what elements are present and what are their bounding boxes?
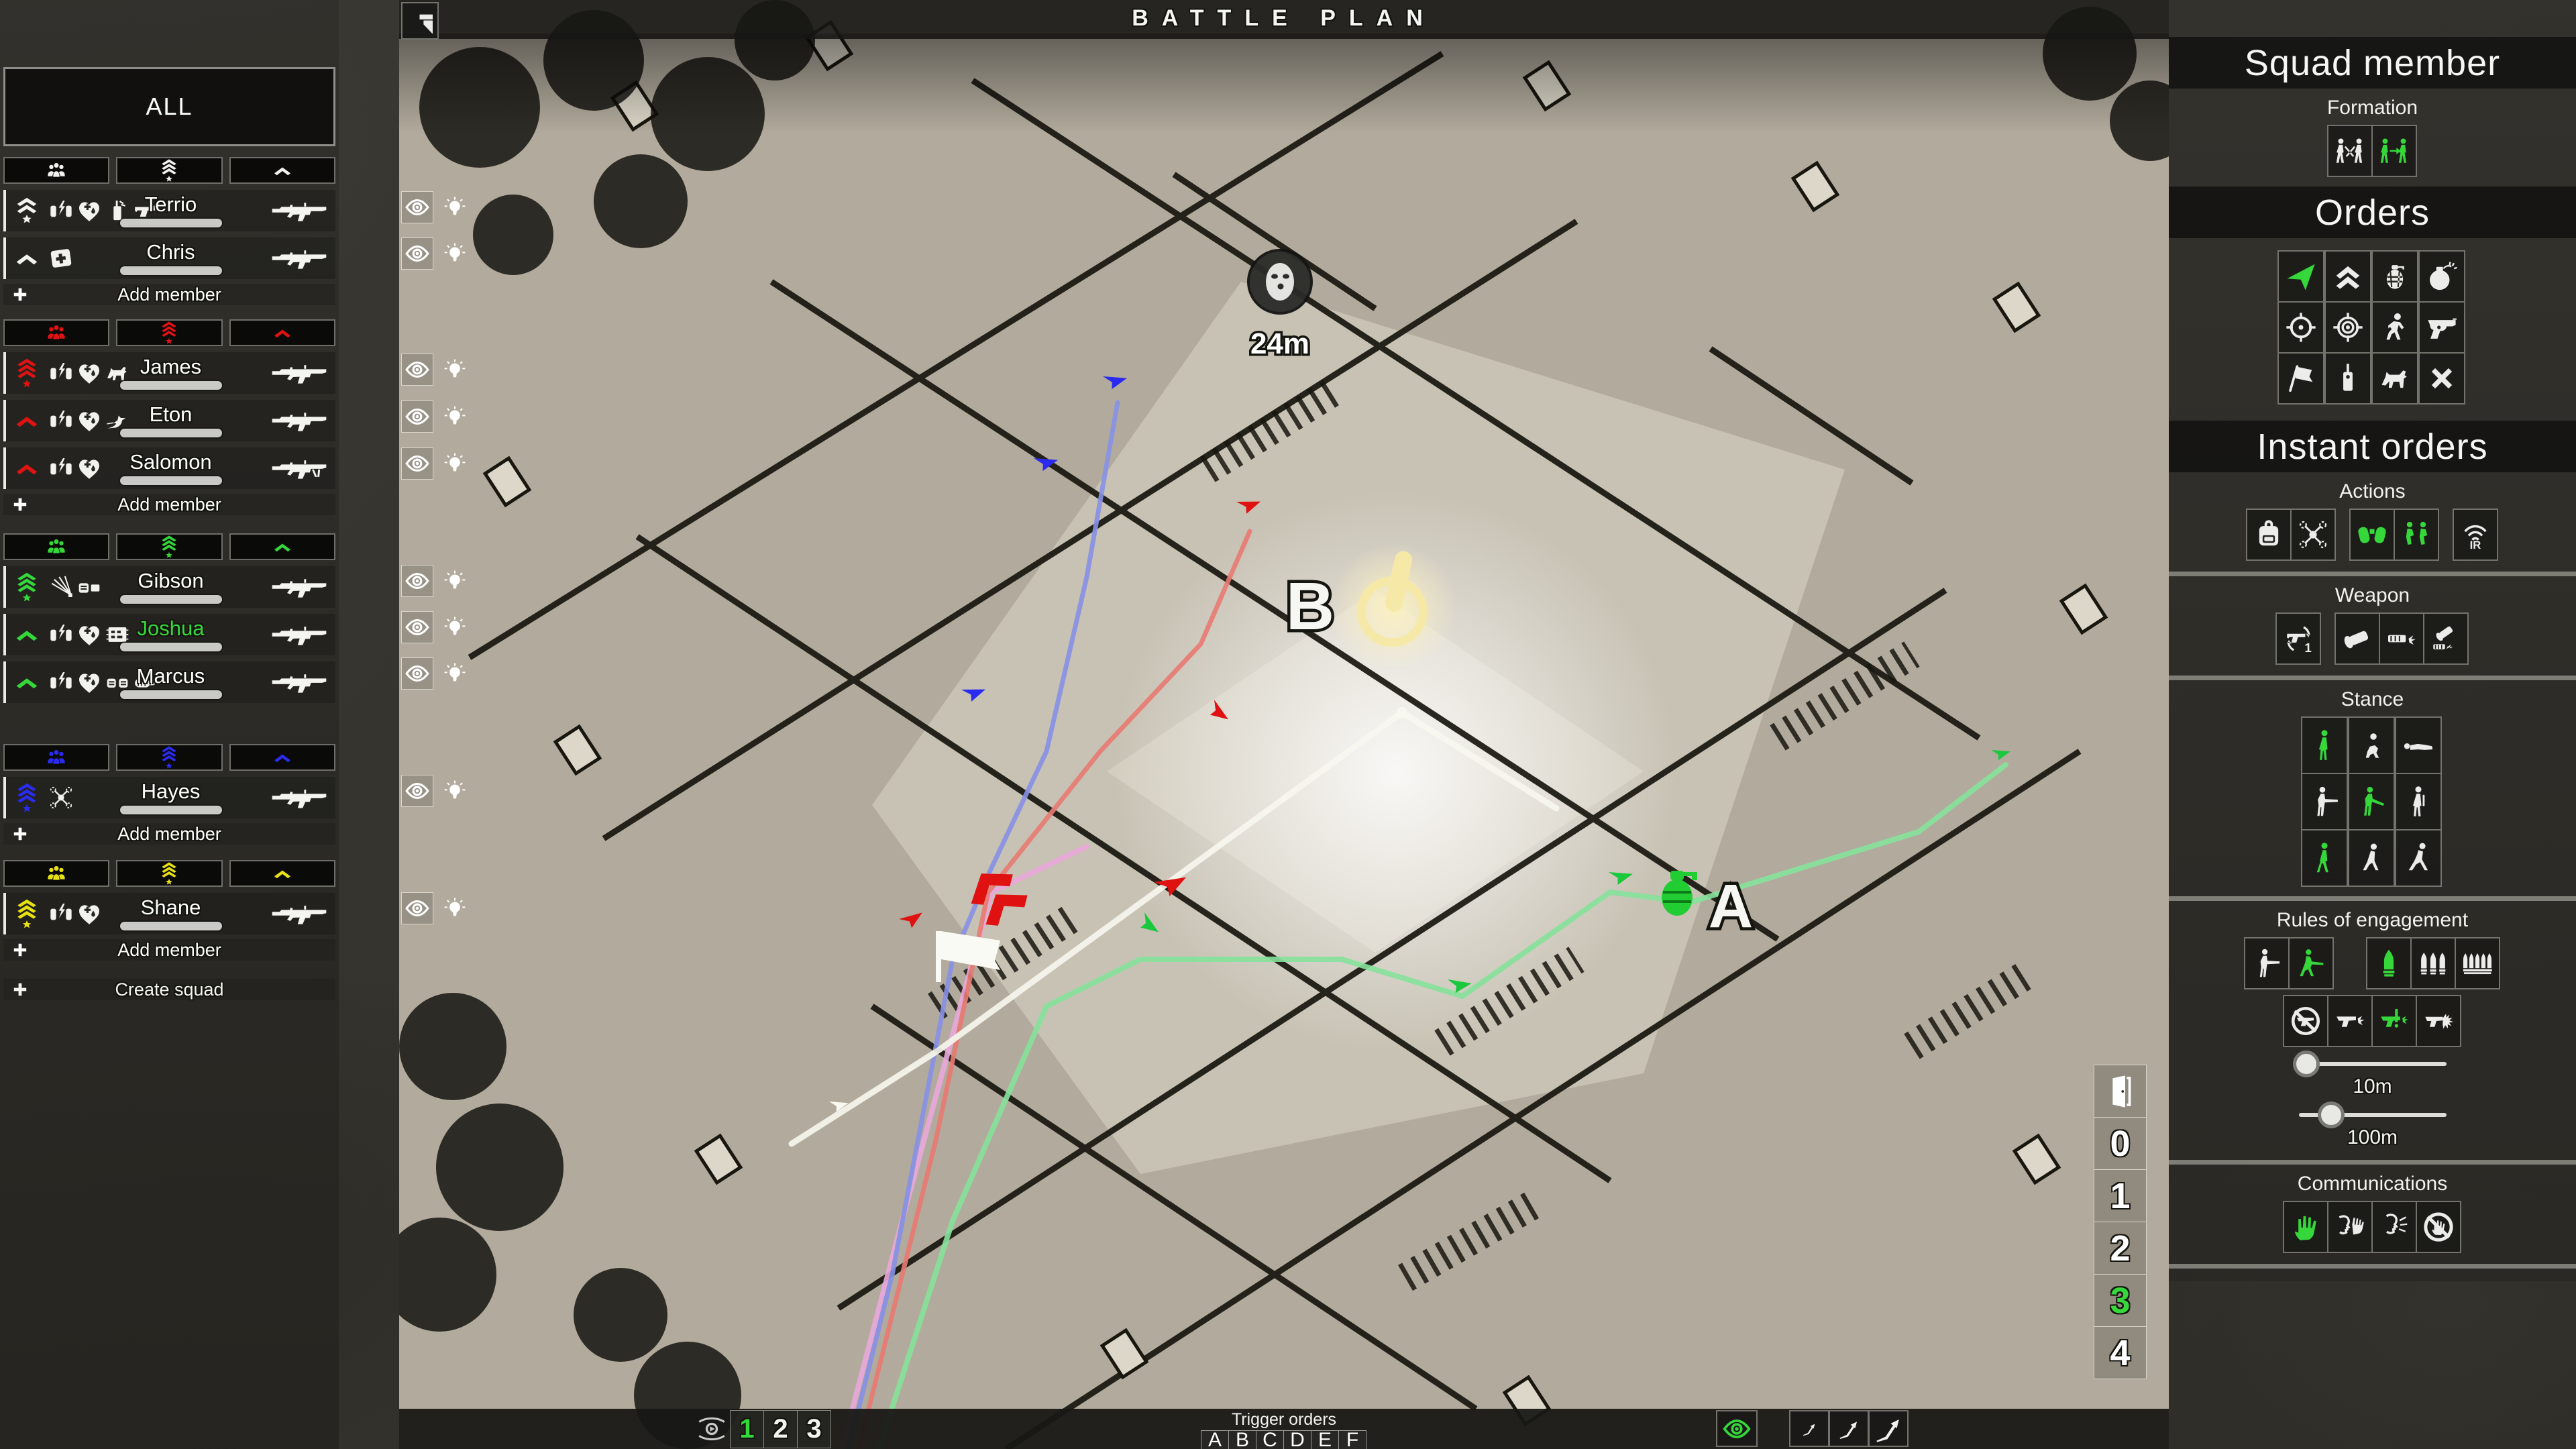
bomb-icon (2424, 258, 2459, 295)
squad-filter-button[interactable] (229, 157, 335, 184)
squad-filter-button[interactable] (3, 157, 109, 184)
plan-tab[interactable]: 1 (730, 1410, 764, 1448)
comms-button[interactable] (2371, 1201, 2417, 1253)
bulb-icon (441, 450, 468, 477)
men-arrow-icon (2377, 131, 2411, 170)
member-visibility-row (401, 192, 482, 223)
stance-button[interactable] (2395, 829, 2442, 887)
chevron-icon (270, 861, 294, 885)
formation-label: Formation (2169, 97, 2576, 119)
weapon-row (2169, 612, 2576, 665)
rifle-icon (268, 783, 330, 812)
stance-button[interactable] (2301, 716, 2348, 774)
medkit-icon (48, 245, 74, 272)
member-view-button[interactable] (401, 611, 433, 643)
order-button[interactable] (2418, 352, 2465, 405)
heart-medic-icon (76, 621, 103, 648)
stance-aim-icon (2307, 780, 2342, 824)
squad-5: Shane Add member (3, 860, 335, 961)
squad-2: James Eton Salomon (3, 319, 335, 515)
replay-360-icon (694, 1412, 729, 1446)
no-comms-icon (2422, 1207, 2455, 1246)
squad-filter-button[interactable] (229, 860, 335, 887)
floor-door-button[interactable] (2094, 1065, 2147, 1118)
bulb-icon (441, 568, 468, 594)
heart-medic-icon (76, 360, 103, 386)
focus-target-icon (2330, 309, 2365, 346)
chevron-icon (11, 619, 42, 650)
member-name: Chris (146, 240, 195, 264)
action-button[interactable] (2453, 508, 2498, 561)
member-health-bar (120, 922, 222, 930)
cancel-x-icon (2424, 360, 2459, 397)
member-name: Marcus (137, 664, 205, 688)
actions-row (2169, 508, 2576, 561)
crosshair-icon (2284, 309, 2318, 346)
roe-fire-button[interactable] (2327, 995, 2373, 1047)
group-icon (44, 535, 68, 559)
member-view-button[interactable] (401, 400, 433, 433)
member-health-bar (120, 381, 222, 390)
range-slider: 100m (2299, 1113, 2447, 1149)
member-row[interactable]: Marcus (3, 661, 335, 703)
member-name: Salomon (129, 450, 211, 474)
bulb-icon (441, 777, 468, 804)
chevron-icon (11, 243, 42, 274)
fire-burst-icon (2422, 1002, 2455, 1040)
member-health-bar (120, 595, 222, 604)
fist-wall-icon (76, 574, 103, 600)
tactical-map[interactable]: 24m B A (399, 0, 2169, 1449)
hands-lightning-icon (48, 669, 74, 696)
hands-lightning-icon (48, 455, 74, 482)
hands-lightning-icon (48, 197, 74, 224)
squad-filter-button[interactable] (116, 744, 222, 771)
rifle-icon (268, 358, 330, 388)
order-button[interactable] (2371, 250, 2418, 303)
weapon-button[interactable] (2379, 612, 2424, 665)
squad-filter-button[interactable] (229, 533, 335, 560)
member-name: Gibson (138, 569, 203, 593)
squad-filter-button[interactable] (3, 744, 109, 771)
roe-fire-button[interactable] (2416, 995, 2461, 1047)
comms-button[interactable] (2416, 1201, 2461, 1253)
roe-button[interactable] (2288, 937, 2334, 989)
bullet-5-icon (2461, 944, 2494, 983)
squad-4-header (3, 744, 335, 771)
squad-list-panel: ALL Terrio Chris (0, 0, 339, 1449)
roe-hold-icon (2250, 944, 2284, 983)
rank-3-star-icon (11, 782, 42, 813)
member-row[interactable]: Salomon (3, 447, 335, 489)
plan-tab[interactable]: 3 (797, 1410, 831, 1448)
squad-3-header (3, 533, 335, 560)
whisper-icon (2333, 1207, 2367, 1246)
member-light-button[interactable] (441, 403, 468, 430)
trigger-button[interactable]: A (1201, 1430, 1229, 1449)
member-view-button[interactable] (401, 191, 433, 223)
weapon-button[interactable] (2275, 612, 2321, 665)
trigger-button[interactable]: E (1311, 1430, 1339, 1449)
crouch-run-icon (2377, 309, 2412, 346)
order-button[interactable] (2324, 301, 2371, 354)
trigger-button[interactable]: D (1283, 1430, 1311, 1449)
member-visibility-row (401, 238, 482, 269)
group-icon (44, 861, 68, 885)
member-visibility-row (401, 354, 482, 385)
roe-fire-button[interactable] (2371, 995, 2417, 1047)
drone-icon (48, 784, 74, 811)
member-view-button[interactable] (401, 447, 433, 480)
member-view-button[interactable] (401, 565, 433, 597)
member-row[interactable]: Joshua (3, 614, 335, 655)
shout-icon (2377, 1207, 2411, 1246)
trigger-button[interactable]: B (1228, 1430, 1256, 1449)
member-name: James (140, 355, 201, 379)
squad-2-header (3, 319, 335, 346)
order-button[interactable] (2371, 301, 2418, 354)
floor-level-button[interactable]: 2 (2094, 1222, 2147, 1275)
roe-label: Rules of engagement (2169, 909, 2576, 932)
stance-button[interactable] (2395, 716, 2442, 774)
floor-selector: 0 1 2 3 4 (2094, 1065, 2147, 1379)
path-scale-button[interactable] (1789, 1410, 1829, 1447)
slider-knob[interactable] (2293, 1051, 2320, 1077)
ir-light-icon (2459, 515, 2492, 554)
comms-button[interactable] (2283, 1201, 2328, 1253)
bulb-icon (441, 403, 468, 430)
stance-prone-icon (2401, 723, 2436, 767)
squad-1: Terrio Chris Add member (3, 157, 335, 305)
member-row[interactable]: Gibson (3, 566, 335, 608)
rank-3-star-icon (11, 358, 42, 388)
order-button[interactable] (2324, 352, 2371, 405)
grenade-icon (2377, 258, 2412, 295)
roe-ammo-button[interactable] (2455, 937, 2500, 989)
action-button[interactable] (2349, 508, 2395, 561)
stance-button[interactable] (2301, 773, 2348, 830)
bullet-1-icon (2372, 944, 2406, 983)
trigger-orders: Trigger orders A B C D E F (1201, 1409, 1366, 1449)
enemy-marker (1248, 250, 1311, 313)
add-member-button[interactable]: Add member (3, 823, 335, 845)
member-health-bar (120, 476, 222, 485)
chevron-icon (270, 535, 294, 559)
eye-icon (405, 661, 430, 686)
add-member-button[interactable]: Add member (3, 284, 335, 305)
order-button[interactable] (2277, 301, 2324, 354)
member-row[interactable]: Terrio (3, 190, 335, 231)
eye-icon (405, 451, 430, 476)
battle-plan-screen: 24m B A BATTLE PLAN ALL (0, 0, 2576, 1449)
member-light-button[interactable] (441, 777, 468, 804)
stance-button[interactable] (2301, 829, 2348, 887)
rifle-icon (268, 406, 330, 435)
bullet-3-icon (2416, 944, 2450, 983)
member-health-bar (120, 429, 222, 437)
rank-3-star-icon (11, 898, 42, 929)
path-scale-button[interactable] (1868, 1410, 1909, 1447)
eye-icon (405, 614, 430, 640)
stance-label: Stance (2169, 688, 2576, 711)
chevron-icon (11, 667, 42, 698)
pistol-swap-icon (2282, 619, 2315, 658)
path-arrow-icon (1801, 1420, 1818, 1438)
member-light-button[interactable] (441, 356, 468, 383)
member-visibility-row (401, 612, 482, 643)
member-light-button[interactable] (441, 240, 468, 267)
chevron-icon (11, 453, 42, 484)
objective-a-label: A (1709, 872, 1753, 941)
rush-chevrons-icon (2330, 258, 2365, 295)
eye-icon (405, 241, 430, 266)
member-name: Shane (141, 896, 201, 920)
roe-ammo-button[interactable] (2366, 937, 2412, 989)
orders-grid (2169, 250, 2576, 403)
floor-level-button[interactable]: 0 (2094, 1117, 2147, 1170)
action-button[interactable] (2246, 508, 2292, 561)
men-cross-icon (2333, 131, 2367, 170)
rank-3-star-icon (157, 158, 181, 182)
stance-run-icon (2401, 836, 2436, 880)
heart-medic-icon (76, 900, 103, 927)
rifle-icon (268, 667, 330, 697)
stance-stand-icon (2307, 723, 2342, 767)
member-name: Joshua (138, 616, 205, 641)
rifle-icon (268, 196, 330, 225)
action-button[interactable] (2290, 508, 2336, 561)
floor-level-button[interactable]: 3 (2094, 1274, 2147, 1327)
plan-tab[interactable]: 2 (763, 1410, 798, 1448)
member-health-bar (120, 690, 222, 699)
floor-level-button[interactable]: 4 (2094, 1326, 2147, 1379)
order-button[interactable] (2371, 352, 2418, 405)
member-light-button[interactable] (441, 660, 468, 687)
squad-5-header (3, 860, 335, 887)
member-visibility-row (401, 566, 482, 596)
rank-3-star-icon (157, 745, 181, 769)
stance-grid (2169, 716, 2576, 885)
bulb-icon (441, 356, 468, 383)
detonator-icon (2330, 360, 2365, 397)
stance-walk-icon (2307, 836, 2342, 880)
path-scale-button[interactable] (1829, 1410, 1869, 1447)
breach-spray-icon (48, 574, 74, 600)
member-visibility-row (401, 448, 482, 479)
hands-lightning-icon (48, 407, 74, 434)
orders-title: Orders (2169, 186, 2576, 238)
rank-3-star-icon (157, 321, 181, 345)
stance-low-icon (2354, 780, 2389, 824)
squad-3: Gibson Joshua Marcus (3, 533, 335, 703)
squad-filter-button[interactable] (3, 860, 109, 887)
squad-member-title: Squad member (2169, 37, 2576, 89)
suppressor-icon (2385, 619, 2418, 658)
bottom-bar: 1 2 3 Trigger orders A B C D E (399, 1409, 2169, 1449)
squad-4: Hayes Add member (3, 744, 335, 845)
squad-filter-button[interactable] (116, 533, 222, 560)
chevron-icon (270, 158, 294, 182)
add-member-button[interactable]: Add member (3, 494, 335, 515)
group-icon (44, 745, 68, 769)
roe-posture-row (2169, 937, 2576, 989)
stance-jog-icon (2354, 836, 2389, 880)
member-health-bar (120, 806, 222, 814)
roe-ammo-button[interactable] (2410, 937, 2456, 989)
bulb-icon (441, 240, 468, 267)
show-paths-button[interactable] (1716, 1410, 1758, 1447)
flashlight-icon (2341, 619, 2374, 658)
squad-filter-button[interactable] (3, 533, 109, 560)
trigger-button[interactable]: F (1338, 1430, 1366, 1449)
door-icon (2102, 1073, 2139, 1110)
squad-filter-button[interactable] (229, 319, 335, 346)
trigger-button[interactable]: C (1256, 1430, 1284, 1449)
eye-icon (405, 404, 430, 429)
heart-medic-icon (76, 197, 103, 224)
formation-options (2169, 125, 2576, 177)
order-button[interactable] (2418, 250, 2465, 303)
squad-filter-button[interactable] (116, 860, 222, 887)
heart-medic-icon (76, 455, 103, 482)
eye-icon (405, 568, 430, 594)
stance-button[interactable] (2348, 773, 2395, 830)
replay-360-button[interactable] (694, 1412, 729, 1446)
roe-button[interactable] (2244, 937, 2290, 989)
stance-relax-icon (2401, 780, 2436, 824)
rank-3-star-icon (157, 861, 181, 885)
stance-crouch-icon (2354, 723, 2389, 767)
order-button[interactable] (2418, 301, 2465, 354)
backpack-icon (2252, 515, 2286, 554)
group-icon (44, 321, 68, 345)
weapon-label: Weapon (2169, 584, 2576, 607)
move-arrow-icon (2284, 258, 2318, 295)
squad-filter-button[interactable] (3, 319, 109, 346)
member-name: Eton (150, 402, 193, 427)
bulb-icon (441, 895, 468, 922)
member-row[interactable]: Eton (3, 400, 335, 441)
weapon-button[interactable] (2334, 612, 2380, 665)
slider-value: 100m (2299, 1126, 2447, 1149)
member-health-bar (120, 266, 222, 275)
plus-icon (11, 981, 29, 998)
member-light-button[interactable] (441, 568, 468, 594)
member-light-button[interactable] (441, 450, 468, 477)
plus-icon (11, 496, 29, 513)
machine-gun-icon (268, 453, 330, 483)
member-row[interactable]: Chris (3, 237, 335, 279)
hands-lightning-icon (48, 621, 74, 648)
hands-lightning-icon (48, 900, 74, 927)
squad-filter-button[interactable] (116, 157, 222, 184)
binoculars-icon (2355, 515, 2389, 554)
no-fire-icon (2289, 1002, 2322, 1040)
bulb-icon (441, 194, 468, 221)
floor-level-button[interactable]: 1 (2094, 1169, 2147, 1222)
fire-warn-icon (2377, 1002, 2411, 1040)
comms-button[interactable] (2327, 1201, 2373, 1253)
rifle-icon (268, 244, 330, 273)
action-button[interactable] (2394, 508, 2439, 561)
member-visibility-row (401, 401, 482, 432)
rifle-icon (268, 899, 330, 928)
chevron-icon (11, 405, 42, 436)
chevron-icon (270, 745, 294, 769)
stance-button[interactable] (2395, 773, 2442, 830)
member-light-button[interactable] (441, 895, 468, 922)
actions-label: Actions (2169, 480, 2576, 503)
member-visibility-row (401, 658, 482, 689)
member-view-button[interactable] (401, 657, 433, 690)
rank-3-star-icon (11, 572, 42, 602)
member-view-button[interactable] (401, 775, 433, 807)
stance-button[interactable] (2348, 829, 2395, 887)
rifle-icon (268, 620, 330, 649)
path-arrow-icon (1836, 1416, 1862, 1442)
formation-button[interactable] (2371, 125, 2417, 177)
stance-button[interactable] (2348, 716, 2395, 774)
dog-icon (2377, 360, 2412, 397)
member-visibility-row (401, 775, 482, 806)
member-view-button[interactable] (401, 237, 433, 270)
add-member-button[interactable]: Add member (3, 939, 335, 961)
squad-filter-button[interactable] (116, 319, 222, 346)
member-view-button[interactable] (401, 892, 433, 924)
create-squad-button[interactable]: Create squad (3, 979, 335, 1000)
squad-filter-button[interactable] (229, 744, 335, 771)
fire-single-icon (2333, 1002, 2367, 1040)
enemy-distance: 24m (1250, 327, 1309, 360)
member-row[interactable]: Shane (3, 893, 335, 934)
member-row[interactable]: Hayes (3, 777, 335, 818)
range-slider: 10m (2299, 1062, 2447, 1098)
member-row[interactable]: James (3, 352, 335, 394)
order-button[interactable] (2277, 250, 2324, 303)
roe-fire-row (2169, 995, 2576, 1047)
trigger-orders-label: Trigger orders (1201, 1410, 1366, 1430)
rank-2-star-icon (11, 195, 42, 226)
slider-track[interactable] (2299, 1062, 2447, 1066)
plus-icon (11, 941, 29, 959)
member-light-button[interactable] (441, 194, 468, 221)
objective-b-label: B (1286, 569, 1334, 644)
top-bar: BATTLE PLAN (399, 0, 2169, 39)
order-button[interactable] (2277, 352, 2324, 405)
page-title: BATTLE PLAN (399, 5, 2169, 32)
order-button[interactable] (2324, 250, 2371, 303)
member-light-button[interactable] (441, 614, 468, 641)
member-view-button[interactable] (401, 354, 433, 386)
bulb-icon (441, 660, 468, 687)
formation-button[interactable] (2327, 125, 2373, 177)
comms-label: Communications (2169, 1173, 2576, 1195)
weapon-button[interactable] (2423, 612, 2469, 665)
heart-medic-icon (76, 669, 103, 696)
chevron-icon (270, 321, 294, 345)
roe-fire-button[interactable] (2283, 995, 2328, 1047)
member-health-bar (120, 643, 222, 651)
hands-lightning-icon (48, 360, 74, 386)
pistol-big-icon (2424, 309, 2459, 346)
heart-medic-icon (76, 407, 103, 434)
rifle-icon (268, 572, 330, 602)
rank-3-star-icon (157, 535, 181, 559)
select-all-button[interactable]: ALL (3, 67, 335, 146)
path-arrow-icon (1872, 1412, 1905, 1446)
eye-icon (405, 195, 430, 220)
slider-knob[interactable] (2318, 1102, 2345, 1128)
